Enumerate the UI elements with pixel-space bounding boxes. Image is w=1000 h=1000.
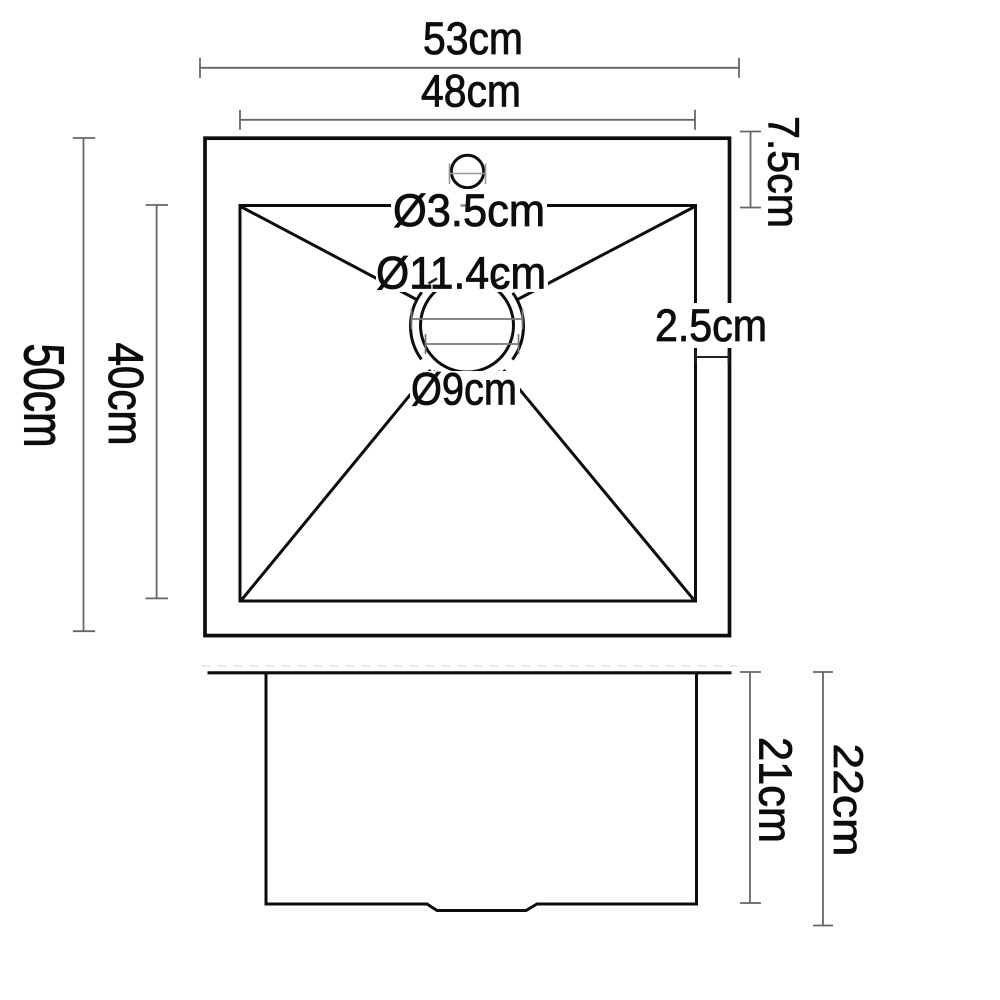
svg-text:21cm: 21cm: [749, 737, 802, 843]
svg-text:Ø3.5cm: Ø3.5cm: [393, 185, 545, 236]
svg-text:50cm: 50cm: [12, 344, 75, 448]
svg-text:7.5cm: 7.5cm: [759, 116, 807, 228]
svg-text:Ø9cm: Ø9cm: [411, 364, 517, 415]
svg-text:48cm: 48cm: [421, 66, 521, 117]
svg-text:53cm: 53cm: [423, 13, 523, 64]
svg-text:22cm: 22cm: [824, 744, 870, 857]
svg-text:2.5cm: 2.5cm: [655, 300, 767, 351]
svg-text:40cm: 40cm: [97, 343, 152, 446]
svg-text:Ø11.4cm: Ø11.4cm: [376, 248, 546, 299]
